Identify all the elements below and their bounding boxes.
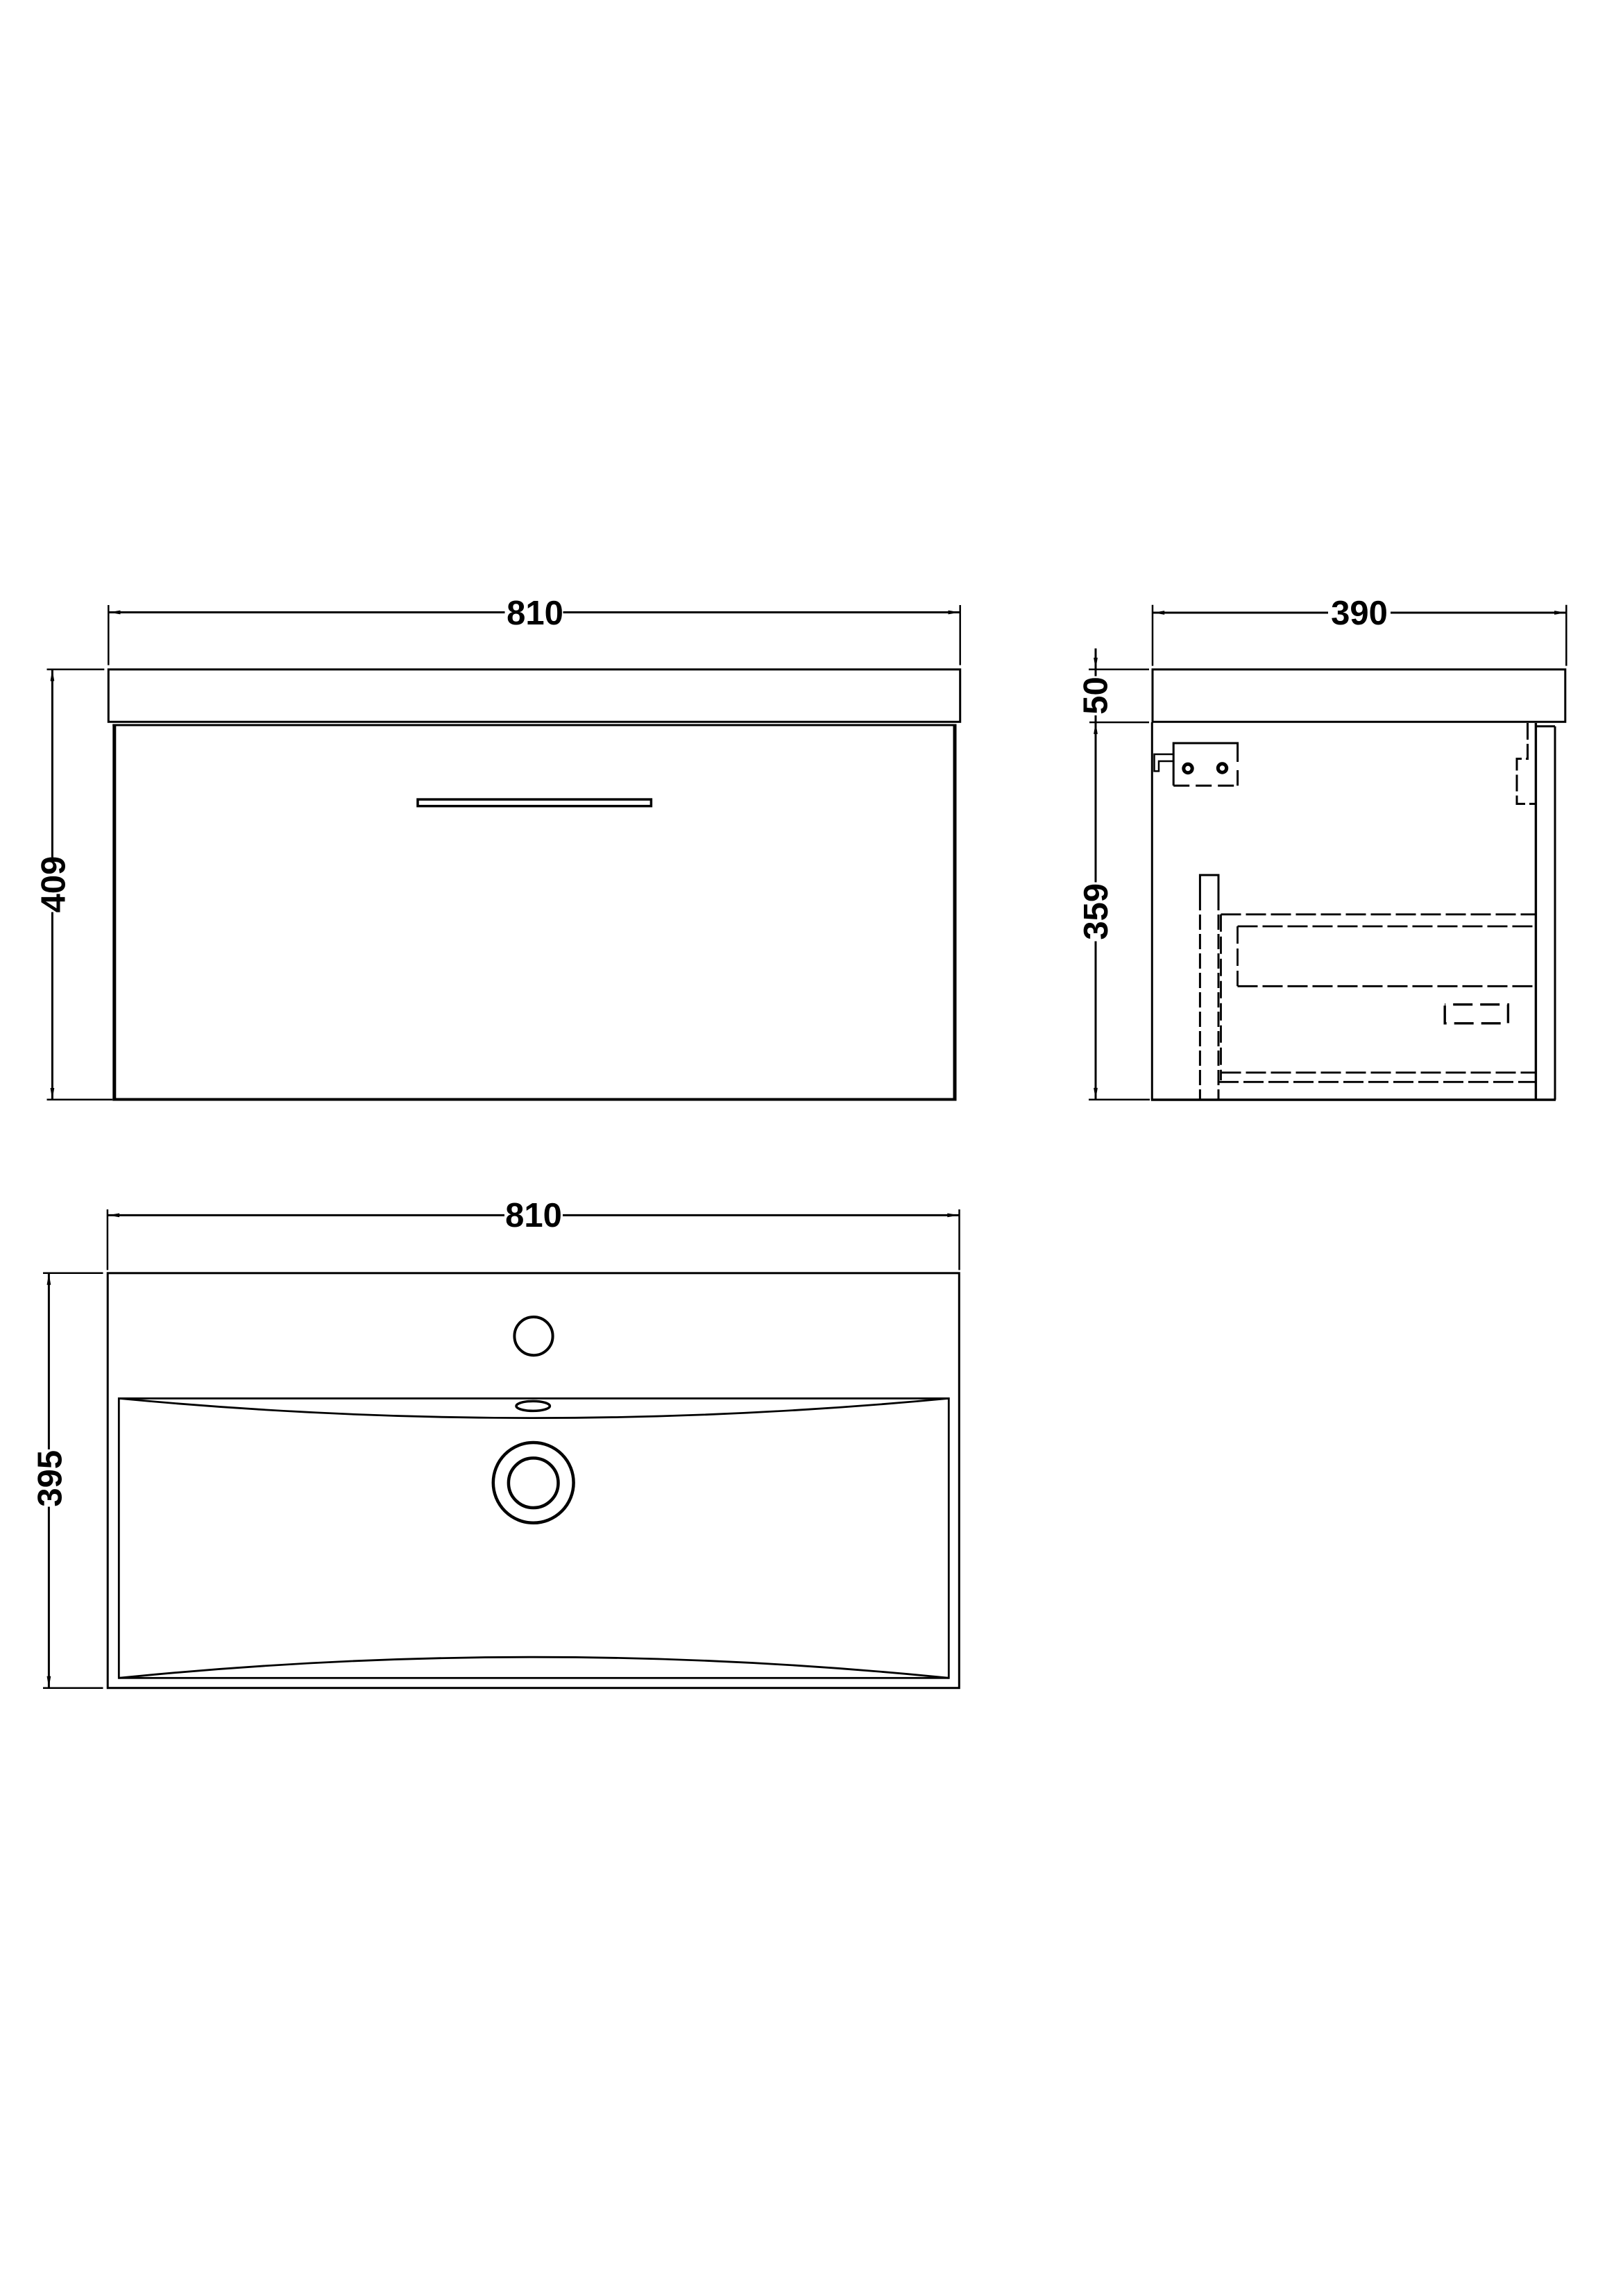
svg-text:50: 50 — [1077, 677, 1114, 715]
svg-text:810: 810 — [507, 595, 563, 632]
svg-text:390: 390 — [1331, 595, 1388, 632]
svg-text:810: 810 — [505, 1197, 562, 1234]
svg-text:395: 395 — [31, 1450, 69, 1507]
svg-text:409: 409 — [35, 856, 72, 913]
svg-text:359: 359 — [1078, 883, 1115, 940]
